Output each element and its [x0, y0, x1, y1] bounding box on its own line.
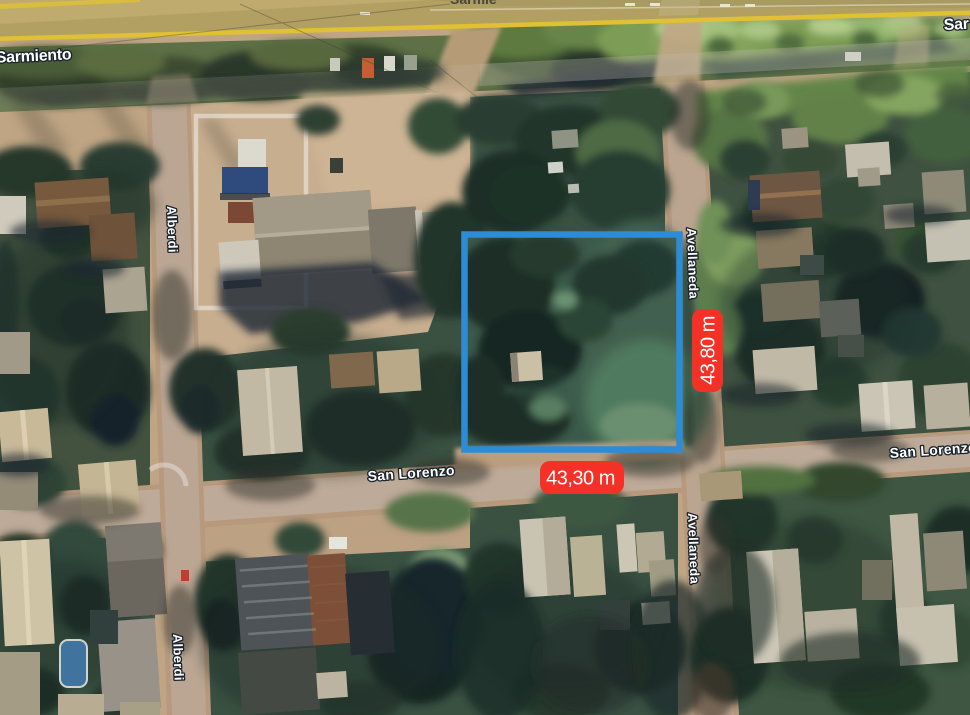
svg-text:Alberdi: Alberdi [170, 634, 187, 681]
svg-text:Sarmie: Sarmie [450, 0, 497, 7]
svg-text:43,30 m: 43,30 m [546, 468, 615, 490]
svg-text:43,80 m: 43,80 m [698, 316, 720, 385]
svg-text:Avellaneda: Avellaneda [685, 513, 702, 585]
svg-text:Sarmiento: Sarmiento [0, 46, 72, 66]
svg-text:Avellaneda: Avellaneda [684, 228, 701, 300]
svg-text:Alberdi: Alberdi [164, 206, 181, 253]
svg-text:Sar: Sar [943, 16, 969, 34]
